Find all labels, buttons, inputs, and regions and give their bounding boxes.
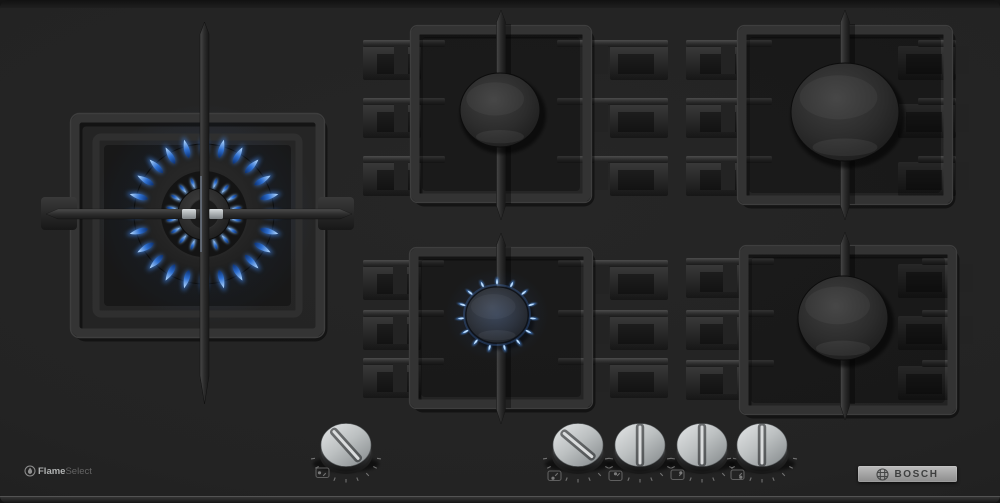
flame-select-light: Select bbox=[65, 466, 91, 477]
knob-indicator-groove bbox=[636, 424, 644, 467]
knob-bottom-middle[interactable] bbox=[543, 424, 613, 483]
burner-flames-bottom-middle bbox=[445, 269, 549, 361]
knob-wok-burner[interactable] bbox=[311, 424, 381, 483]
knob-top-right[interactable] bbox=[667, 424, 737, 483]
burner-position-icon-bottom-middle bbox=[548, 471, 561, 481]
bosch-logo-icon bbox=[876, 468, 889, 481]
wok-burner-zone bbox=[41, 22, 354, 404]
flame-select-icon bbox=[24, 465, 36, 477]
flame-select-logo: FlameSelect bbox=[24, 465, 92, 477]
burner-position-icon-top-middle bbox=[609, 471, 622, 481]
knob-bottom-right[interactable] bbox=[727, 424, 797, 483]
bosch-logo: BOSCH bbox=[858, 466, 957, 482]
cooktop-product-image: FlameSelect BOSCH bbox=[0, 0, 1000, 503]
knob-indicator-groove bbox=[698, 424, 706, 467]
knob-indicator-groove bbox=[758, 424, 766, 467]
cooktop-front-edge bbox=[0, 496, 1000, 503]
flame-select-label: FlameSelect bbox=[38, 467, 92, 477]
bosch-logo-text: BOSCH bbox=[894, 469, 938, 480]
burner-position-icon-top-right bbox=[671, 470, 684, 480]
flame-select-bold: Flame bbox=[38, 466, 65, 477]
burner-position-icon-bottom-right bbox=[731, 470, 744, 480]
cooktop-graphics bbox=[0, 0, 1000, 503]
